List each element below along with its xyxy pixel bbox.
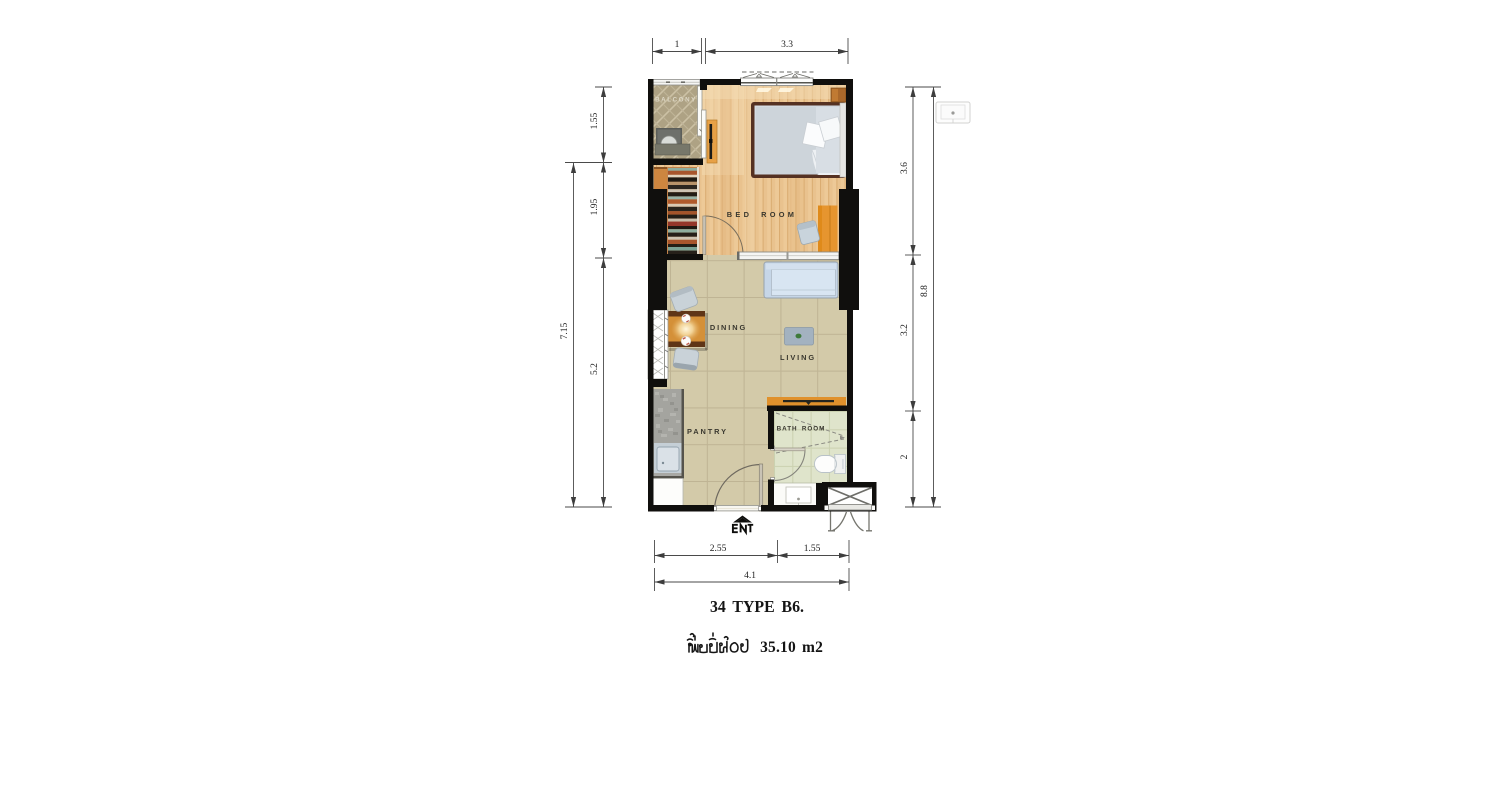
- svg-text:35.10: 35.10: [760, 639, 796, 656]
- svg-text:5.2: 5.2: [590, 363, 600, 375]
- svg-text:1: 1: [675, 40, 680, 50]
- svg-text:34 TYPE B6.: 34 TYPE B6.: [710, 597, 804, 616]
- svg-text:1.95: 1.95: [590, 198, 600, 215]
- svg-text:2: 2: [900, 454, 910, 459]
- svg-text:LIVING: LIVING: [780, 353, 816, 362]
- svg-text:BALCONY: BALCONY: [655, 97, 697, 104]
- svg-text:3.3: 3.3: [781, 40, 793, 50]
- svg-text:DINING: DINING: [710, 323, 747, 332]
- svg-text:4.1: 4.1: [744, 571, 756, 581]
- svg-text:BATH ROOM: BATH ROOM: [777, 426, 826, 433]
- svg-text:7.15: 7.15: [560, 322, 570, 339]
- svg-text:1.55: 1.55: [804, 544, 821, 554]
- svg-text:2.55: 2.55: [710, 544, 727, 554]
- svg-text:1.55: 1.55: [590, 112, 600, 129]
- svg-text:BED ROOM: BED ROOM: [727, 210, 798, 219]
- svg-text:3.6: 3.6: [900, 162, 910, 174]
- svg-text:3.2: 3.2: [900, 324, 910, 336]
- svg-text:m2: m2: [802, 639, 823, 656]
- svg-text:8.8: 8.8: [920, 285, 930, 297]
- svg-text:PANTRY: PANTRY: [687, 427, 728, 436]
